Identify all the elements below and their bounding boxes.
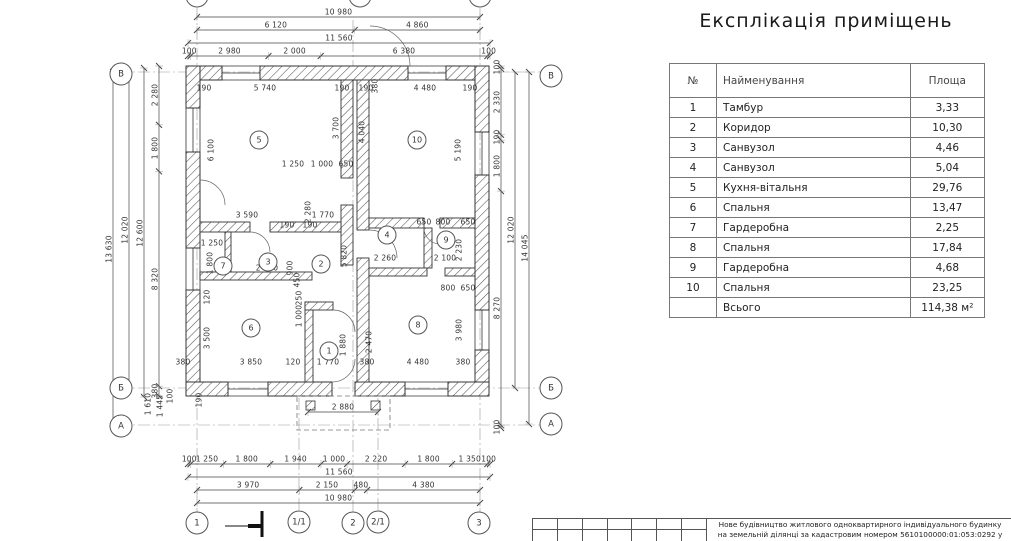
- dim-label: 1 250: [201, 240, 223, 248]
- dim-label: 100: [493, 419, 501, 434]
- project-description-line1: Нове будівництво житлового одноквартирно…: [711, 520, 1009, 530]
- dim-label: 650: [339, 161, 354, 169]
- table-row: 3Санвузол4,46: [670, 138, 985, 158]
- table-row: 2Коридор10,30: [670, 118, 985, 138]
- dim-label: 5 820: [340, 245, 348, 267]
- dim-label: 190: [335, 85, 350, 93]
- room-number-cell: 4: [670, 158, 717, 178]
- table-row: 9Гардеробна4,68: [670, 258, 985, 278]
- dim-label: 100: [481, 456, 496, 464]
- table-row: 5Кухня-вітальня29,76: [670, 178, 985, 198]
- dim-label: 2 000: [283, 48, 305, 56]
- room-number-cell: 9: [670, 258, 717, 278]
- room-area-cell: 3,33: [910, 98, 984, 118]
- dim-label: 3 500: [203, 327, 211, 349]
- dim-label: 1 000: [295, 305, 303, 327]
- dim-label: 1 940: [284, 456, 306, 464]
- dim-label: 480: [353, 482, 368, 490]
- room-number-cell: 1: [670, 98, 717, 118]
- dim-label: 1 250: [282, 161, 304, 169]
- total-empty-cell: [670, 298, 717, 318]
- table-row: 4Санвузол5,04: [670, 158, 985, 178]
- dim-label: 13 630: [105, 235, 113, 262]
- axis-bubble-3: 3: [468, 512, 491, 535]
- dim-label: 8 270: [493, 297, 501, 319]
- dim-label: 450: [293, 273, 301, 288]
- axis-bubble-В: В: [110, 63, 133, 86]
- dim-label: 650: [461, 219, 476, 227]
- dim-label: 4 380: [412, 482, 434, 490]
- dim-label: 10 980: [325, 495, 352, 503]
- dim-label: 650: [417, 219, 432, 227]
- room-name-cell: Санвузол: [716, 138, 910, 158]
- dim-label: 190: [195, 393, 203, 408]
- dim-label: 5 190: [454, 139, 462, 161]
- room-area-cell: 5,04: [910, 158, 984, 178]
- project-description-line2: на земельній ділянці за кадастровим номе…: [711, 530, 1009, 540]
- room-area-cell: 4,68: [910, 258, 984, 278]
- room-name-cell: Спальня: [716, 198, 910, 218]
- room-number-cell: 6: [670, 198, 717, 218]
- room-number-bubble: 5: [250, 131, 269, 150]
- dim-label: 10 980: [325, 9, 352, 17]
- room-name-cell: Спальня: [716, 278, 910, 298]
- dim-label: 1 250: [196, 456, 218, 464]
- dim-label: 1 770: [312, 212, 334, 220]
- axis-bubble-А: А: [540, 413, 563, 436]
- dim-label: 190: [463, 85, 478, 93]
- dim-label: 250: [295, 291, 303, 306]
- dim-label: 100: [182, 48, 197, 56]
- dim-label: 8 320: [151, 268, 159, 290]
- dim-label: 380: [360, 359, 375, 367]
- axis-bubble-2/1: 2/1: [367, 511, 390, 534]
- room-name-cell: Санвузол: [716, 158, 910, 178]
- dim-label: 4 860: [406, 22, 428, 30]
- dim-label: 100: [182, 456, 197, 464]
- room-number-cell: 3: [670, 138, 717, 158]
- dim-label: 380: [371, 79, 379, 94]
- dim-label: 100: [493, 60, 501, 75]
- title-block-grid: [532, 518, 707, 541]
- total-value: 114,38 м²: [910, 298, 984, 318]
- explication-table: № Найменування Площа 1Тамбур3,332Коридор…: [669, 63, 985, 318]
- table-header-row: № Найменування Площа: [670, 64, 985, 98]
- dim-label: 120: [203, 290, 211, 305]
- room-area-cell: 4,46: [910, 138, 984, 158]
- dim-label: 3 590: [236, 212, 258, 220]
- dim-label: 2 230: [455, 239, 463, 261]
- axis-bubble-1/1: 1/1: [288, 511, 311, 534]
- room-name-cell: Спальня: [716, 238, 910, 258]
- dim-label: 12 020: [121, 216, 129, 243]
- room-number-bubble: 4: [378, 226, 397, 245]
- dim-label: 6 120: [265, 22, 287, 30]
- dim-label: 3 980: [455, 319, 463, 341]
- room-area-cell: 29,76: [910, 178, 984, 198]
- room-number-bubble: 3: [259, 253, 278, 272]
- dim-label: 2 150: [316, 482, 338, 490]
- dim-label: 12 600: [136, 219, 144, 246]
- dim-label: 4 040: [358, 121, 366, 143]
- dim-label: 190: [197, 85, 212, 93]
- dim-label: 2 330: [493, 91, 501, 113]
- dim-label: 5 740: [254, 85, 276, 93]
- room-number-bubble: 10: [408, 131, 427, 150]
- dim-label: 2 980: [218, 48, 240, 56]
- room-area-cell: 17,84: [910, 238, 984, 258]
- dim-label: 2 880: [332, 404, 354, 412]
- dim-label: 6 100: [207, 139, 215, 161]
- axis-bubble-Б: Б: [110, 377, 133, 400]
- dim-label: 100: [166, 389, 174, 404]
- table-row: 7Гардеробна2,25: [670, 218, 985, 238]
- dim-label: 100: [481, 48, 496, 56]
- dim-label: 14 045: [521, 234, 529, 261]
- dim-label: 3 970: [237, 482, 259, 490]
- dim-label: 190: [493, 130, 501, 145]
- project-description: Нове будівництво житлового одноквартирно…: [707, 518, 1011, 541]
- dim-label: 1 800: [417, 456, 439, 464]
- dim-label: 11 560: [325, 35, 352, 43]
- room-name-cell: Коридор: [716, 118, 910, 138]
- room-number-cell: 7: [670, 218, 717, 238]
- room-name-cell: Тамбур: [716, 98, 910, 118]
- axis-bubble-А: А: [110, 415, 133, 438]
- dim-label: 120: [286, 359, 301, 367]
- room-number-bubble: 6: [242, 319, 261, 338]
- room-name-cell: Гардеробна: [716, 218, 910, 238]
- section-mark: [225, 511, 262, 537]
- dim-label: 1 800: [206, 252, 214, 274]
- dim-label: 6 380: [393, 48, 415, 56]
- dim-label: 4 480: [407, 359, 429, 367]
- room-number-bubble: 7: [214, 257, 233, 276]
- room-area-cell: 13,47: [910, 198, 984, 218]
- title-block: Нове будівництво житлового одноквартирно…: [532, 518, 1011, 541]
- dim-label: 3 850: [240, 359, 262, 367]
- dim-label: 1 800: [493, 154, 501, 176]
- total-label: Всього: [716, 298, 910, 318]
- col-header-number: №: [670, 64, 717, 98]
- room-area-cell: 2,25: [910, 218, 984, 238]
- dim-label: 1 800: [236, 456, 258, 464]
- dim-label: 190: [280, 222, 295, 230]
- dim-label: 2 280: [304, 201, 312, 223]
- explication-title: Експлікація приміщень: [676, 10, 976, 32]
- axis-bubble-Б: Б: [540, 377, 563, 400]
- room-number-bubble: 2: [312, 255, 331, 274]
- dim-label: 650: [461, 285, 476, 293]
- axis-bubble-1: 1: [186, 512, 209, 535]
- dim-label: 1 000: [323, 456, 345, 464]
- axis-bubble-В: В: [540, 65, 563, 88]
- dim-label: 1 445: [156, 395, 164, 417]
- dim-label: 4 480: [414, 85, 436, 93]
- room-number-cell: 10: [670, 278, 717, 298]
- room-number-bubble: 9: [437, 231, 456, 250]
- room-area-cell: 23,25: [910, 278, 984, 298]
- dim-label: 1 880: [339, 334, 347, 356]
- dim-label: 1 800: [151, 137, 159, 159]
- table-row: 8Спальня17,84: [670, 238, 985, 258]
- dim-label: 12 020: [507, 216, 515, 243]
- dim-label: 380: [456, 359, 471, 367]
- dim-label: 800: [436, 219, 451, 227]
- dim-label: 1 000: [311, 161, 333, 169]
- room-number-cell: 8: [670, 238, 717, 258]
- dim-label: 1 350: [459, 456, 481, 464]
- dim-label: 2 100: [434, 255, 456, 263]
- dim-label: 2 280: [151, 84, 159, 106]
- blueprint-sheet: Експлікація приміщень № Найменування Пло…: [0, 0, 1011, 541]
- dim-label: 2 220: [365, 456, 387, 464]
- col-header-name: Найменування: [716, 64, 910, 98]
- room-number-bubble: 8: [409, 316, 428, 335]
- table-total-row: Всього 114,38 м²: [670, 298, 985, 318]
- dim-label: 2 260: [374, 255, 396, 263]
- dim-label: 1 610: [144, 393, 152, 415]
- dim-label: 2 470: [365, 331, 373, 353]
- dim-label: 380: [176, 359, 191, 367]
- dim-label: 800: [441, 285, 456, 293]
- room-number-cell: 5: [670, 178, 717, 198]
- dim-label: 3 700: [332, 117, 340, 139]
- room-area-cell: 10,30: [910, 118, 984, 138]
- axis-bubble-2: 2: [342, 512, 365, 535]
- dim-label: 11 560: [325, 469, 352, 477]
- room-name-cell: Гардеробна: [716, 258, 910, 278]
- table-row: 6Спальня13,47: [670, 198, 985, 218]
- table-row: 1Тамбур3,33: [670, 98, 985, 118]
- room-number-cell: 2: [670, 118, 717, 138]
- room-name-cell: Кухня-вітальня: [716, 178, 910, 198]
- table-row: 10Спальня23,25: [670, 278, 985, 298]
- room-number-bubble: 1: [320, 342, 339, 361]
- col-header-area: Площа: [910, 64, 984, 98]
